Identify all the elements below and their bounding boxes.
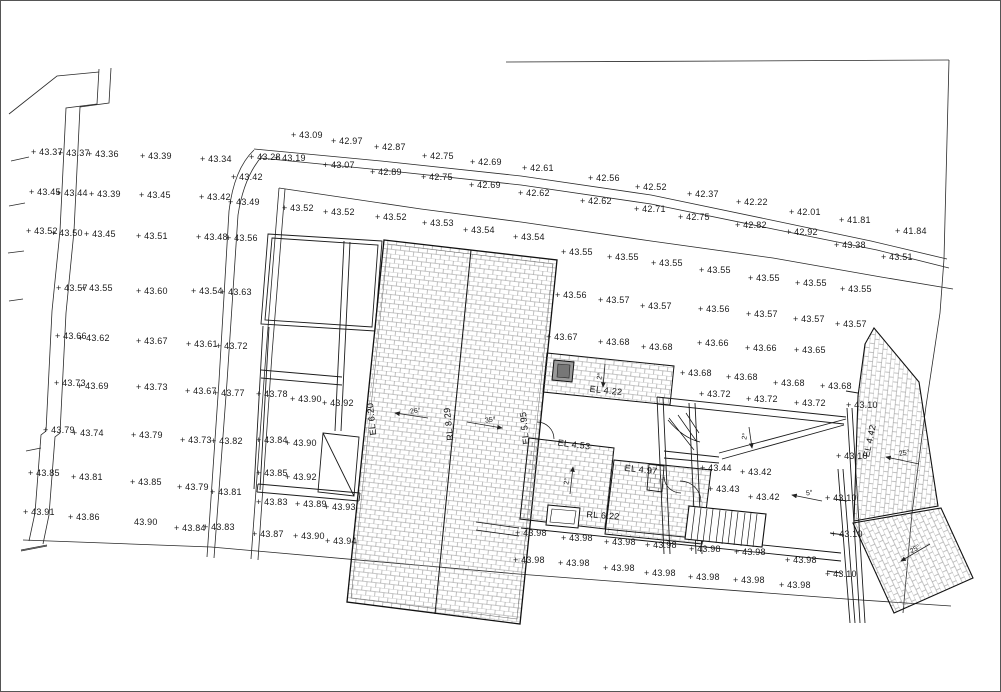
top-boundary-line: [506, 60, 949, 62]
awning-el422: [543, 353, 674, 405]
edge-ticks: [8, 157, 47, 551]
road-edge-west-1: [29, 69, 99, 541]
masonry-pier: [647, 464, 664, 492]
winder-stair: [668, 413, 700, 450]
east-roofs: [853, 328, 973, 613]
dwelling-diagonal-wall: [719, 419, 846, 459]
bottom-left-jog: [21, 545, 47, 550]
main-roof-outline: [347, 240, 557, 624]
ramp-box: [318, 433, 359, 496]
top-left-boundary: [9, 72, 99, 114]
main-roof: [347, 240, 557, 624]
east-roof-lower: [853, 508, 973, 613]
skylight-inner: [557, 364, 570, 378]
slope-arrow: [792, 495, 822, 501]
front-boundary-west: [251, 188, 285, 560]
wing-outer-wall: [261, 234, 382, 331]
garage-lintel: [257, 484, 360, 501]
wing-mid-wall: [261, 370, 342, 385]
wing-inner-wall: [265, 238, 378, 327]
site-plan-page: + 43.37+ 43.37+ 43.36+ 43.39+ 43.34+ 43.…: [0, 0, 1001, 692]
road-edge-west-2: [43, 68, 111, 544]
site-plan-drawing: [1, 1, 1001, 692]
wing-east-wall: [335, 241, 350, 431]
wing-west-wall: [254, 326, 269, 490]
east-wall-ticks: [827, 391, 858, 573]
east-roof-upper: [854, 328, 938, 521]
kerb-corner-1: [207, 150, 254, 557]
kerb-line-2: [260, 158, 949, 268]
kerb-line-1: [254, 149, 947, 259]
dwelling-top-wall: [657, 397, 846, 424]
